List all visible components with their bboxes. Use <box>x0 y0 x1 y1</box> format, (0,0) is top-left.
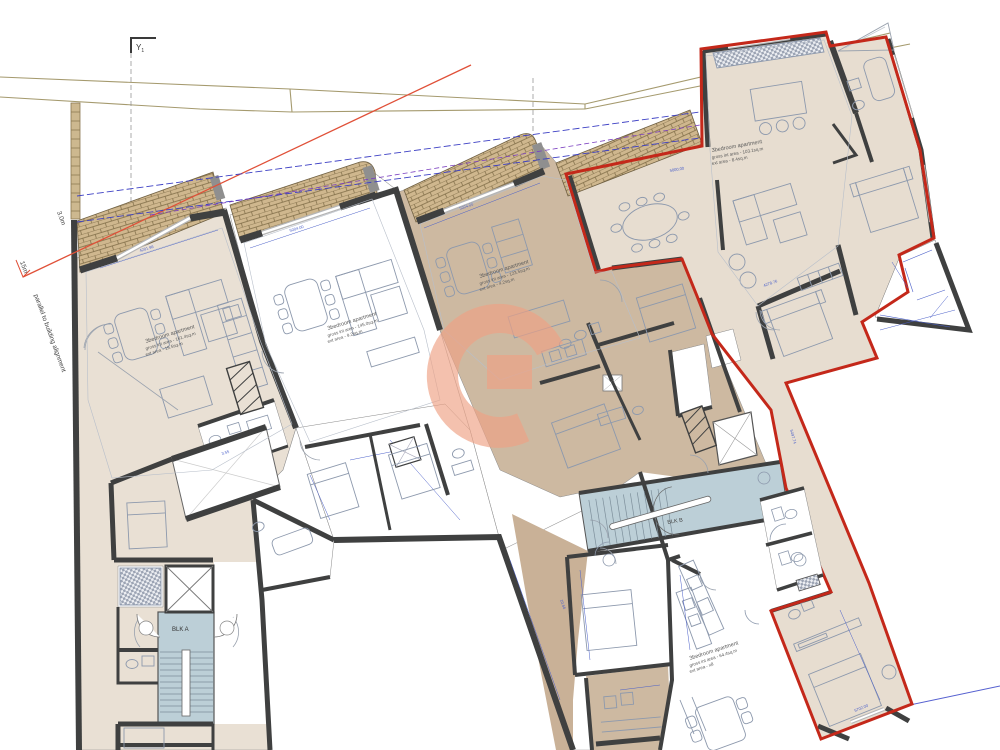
svg-text:BLK A: BLK A <box>172 627 189 633</box>
